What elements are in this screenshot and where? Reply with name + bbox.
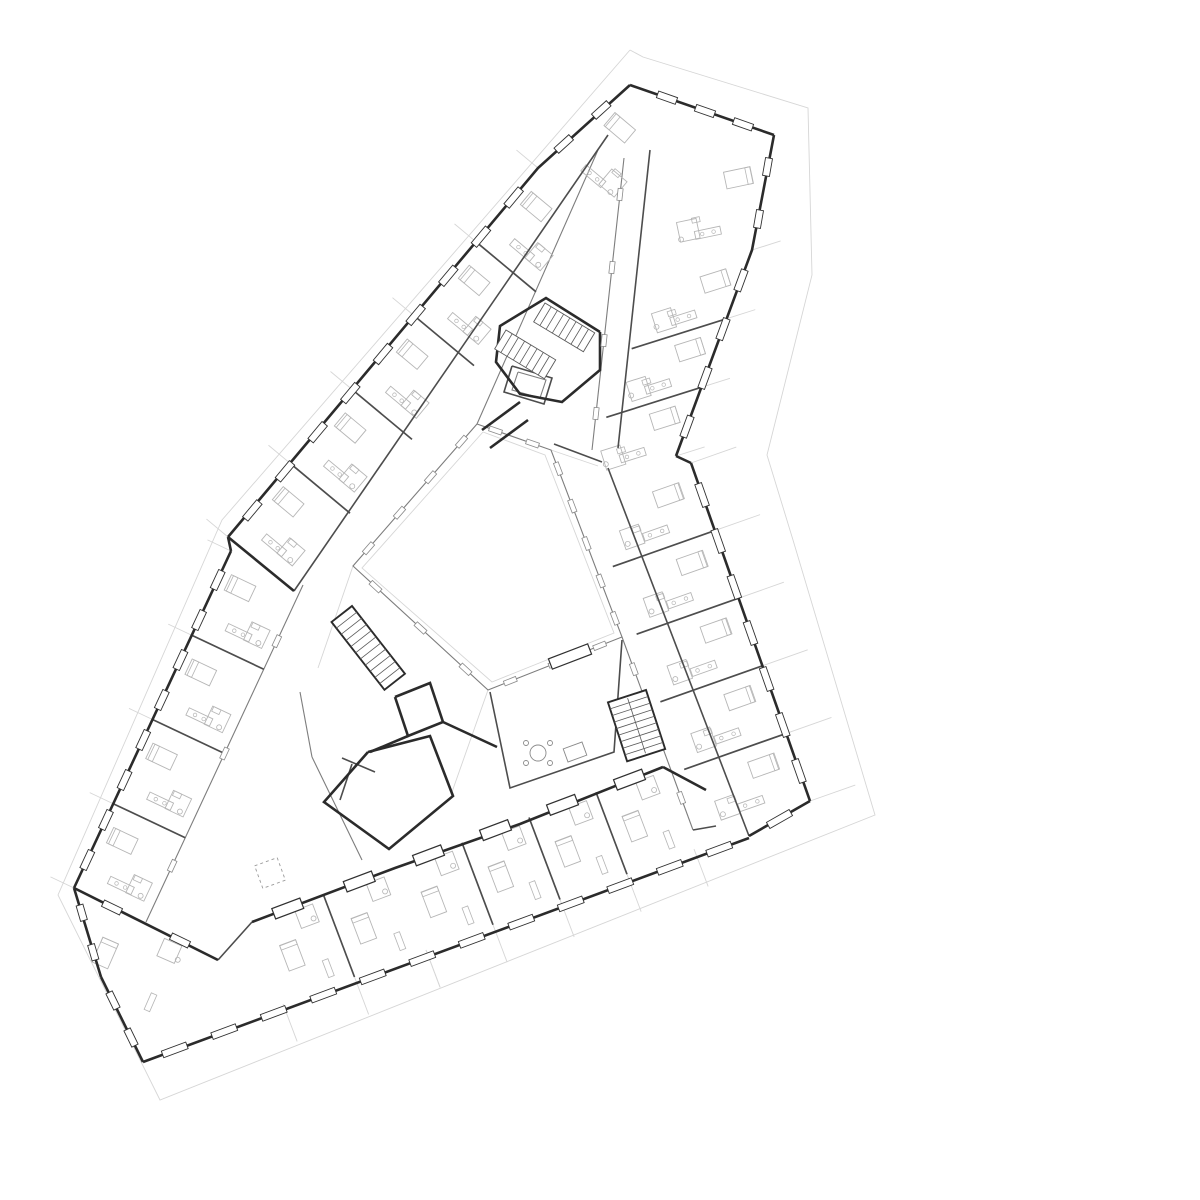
- wing-b-lower-units-ext: [715, 515, 760, 531]
- kitchen-counter: [666, 593, 693, 609]
- window: [373, 343, 392, 364]
- wc-fixture: [350, 484, 355, 489]
- desk: [462, 906, 474, 925]
- sawtooth-t1: [342, 758, 375, 772]
- window-tick: [369, 580, 382, 592]
- burner: [154, 797, 158, 801]
- entry-porch-a1: [482, 402, 520, 430]
- window: [680, 415, 694, 438]
- sink: [212, 707, 221, 715]
- sink: [691, 217, 700, 224]
- southwest-end-wall-a: [101, 977, 143, 1062]
- bed: [488, 861, 513, 892]
- bed-pillow: [226, 576, 238, 594]
- burner: [625, 455, 629, 459]
- wing-a-units-ext: [392, 298, 414, 316]
- burner: [648, 533, 652, 537]
- window: [99, 809, 114, 830]
- wc-fixture: [536, 262, 541, 267]
- wc-fixture: [383, 889, 388, 894]
- bathroom: [204, 706, 231, 733]
- window: [694, 104, 715, 117]
- bathroom: [165, 790, 192, 817]
- window: [76, 904, 87, 921]
- wing-b-upper-units-ext: [676, 447, 705, 456]
- large-window: [343, 871, 375, 892]
- wc-fixture: [518, 838, 523, 843]
- window-tick: [610, 611, 619, 625]
- window-tick: [582, 537, 591, 551]
- wc-fixture: [451, 863, 456, 868]
- burner: [672, 601, 676, 605]
- bed: [652, 483, 683, 508]
- large-window: [614, 769, 646, 790]
- burner: [660, 529, 664, 533]
- desk: [394, 932, 406, 951]
- burner: [595, 178, 599, 182]
- window: [275, 461, 294, 482]
- wc-fixture: [256, 641, 261, 646]
- window-tick: [677, 791, 686, 804]
- common-room-side-table: [563, 742, 587, 762]
- wc-fixture: [652, 788, 657, 793]
- entry-porch-a2: [490, 420, 528, 448]
- sawtooth-corridor-a: [312, 757, 362, 860]
- window: [695, 483, 710, 508]
- window: [776, 713, 791, 738]
- burner: [743, 804, 747, 808]
- burner: [684, 597, 688, 601]
- kitchen-counter: [186, 708, 213, 726]
- left-wing-units-ext: [90, 793, 114, 804]
- large-window: [413, 845, 445, 866]
- window: [554, 135, 574, 154]
- bed: [146, 743, 178, 770]
- window-tick: [596, 574, 605, 588]
- burner: [651, 386, 655, 390]
- bathroom: [126, 875, 153, 902]
- burner: [708, 664, 712, 668]
- stair-cores: [332, 303, 666, 761]
- window: [154, 689, 169, 710]
- wc-fixture: [288, 558, 293, 563]
- window-tick: [593, 641, 607, 650]
- window: [101, 900, 122, 915]
- window: [211, 1024, 238, 1040]
- window-tick: [568, 499, 577, 513]
- window: [763, 158, 773, 177]
- window-tick: [489, 426, 503, 435]
- wing-a-inner-wall: [294, 135, 608, 591]
- bottom-wing-units-east-partition: [462, 843, 493, 925]
- burner: [720, 736, 724, 740]
- floor-plan-drawing: [0, 0, 1200, 1200]
- bed-pillow: [488, 861, 506, 872]
- bed-pillow: [555, 836, 573, 847]
- courtyard-gallery-line: [362, 432, 614, 682]
- corridor-junction: [693, 826, 716, 830]
- desk: [322, 959, 334, 978]
- burner: [696, 669, 700, 673]
- burner: [400, 399, 404, 403]
- window: [711, 529, 726, 554]
- bed: [280, 940, 305, 971]
- kitchen-counter: [448, 312, 473, 335]
- desk: [596, 855, 608, 874]
- burner: [232, 629, 236, 633]
- bed-pillow: [274, 488, 289, 504]
- kitchen-counter: [262, 534, 287, 557]
- bed-pillow: [398, 341, 413, 357]
- bed-pillow: [670, 406, 680, 424]
- window: [792, 759, 807, 784]
- bed-pillow: [187, 660, 199, 678]
- bed-pillow: [108, 828, 120, 846]
- floor-plan-page: [0, 0, 1200, 1200]
- wc-fixture: [177, 809, 182, 814]
- wc-fixture: [649, 609, 654, 614]
- wing-b-lower-units-ext: [786, 717, 831, 733]
- burner: [338, 473, 342, 477]
- wing-b-corridor-west-facade: [592, 158, 624, 450]
- wc-fixture: [720, 812, 725, 817]
- window: [308, 422, 327, 443]
- bed-pillow: [460, 267, 475, 283]
- common-room-table: [530, 745, 546, 761]
- window: [754, 210, 764, 229]
- bed-pillow: [622, 810, 640, 821]
- large-window: [548, 644, 591, 669]
- bed-pillow: [336, 414, 351, 430]
- sink: [172, 791, 181, 799]
- left-wing-units-ext: [129, 708, 153, 719]
- bathroom: [277, 538, 305, 566]
- window-tick: [503, 676, 517, 685]
- wing-a-units-ext: [268, 445, 290, 463]
- bed: [351, 913, 376, 944]
- chair: [524, 741, 529, 746]
- wing-b-lower-units-ext: [762, 650, 807, 666]
- window: [359, 969, 386, 985]
- window: [508, 914, 535, 930]
- burner: [756, 800, 760, 804]
- burner: [193, 713, 197, 717]
- burner: [712, 230, 716, 234]
- window: [210, 569, 225, 590]
- bed: [700, 269, 731, 293]
- wc-fixture: [138, 893, 143, 898]
- window: [260, 1006, 287, 1022]
- window: [106, 991, 120, 1010]
- wc-fixture: [625, 541, 630, 546]
- window-tick: [455, 435, 467, 448]
- bathroom: [243, 622, 270, 649]
- sawtooth-corridor-b: [300, 692, 312, 757]
- site-marker: [255, 858, 286, 889]
- burner: [676, 318, 680, 322]
- sawtooth-kite: [324, 736, 453, 849]
- window: [117, 769, 132, 790]
- burner: [455, 319, 459, 323]
- sawtooth-square: [395, 683, 443, 736]
- burner: [123, 886, 127, 890]
- window-symbols: [76, 91, 806, 1058]
- wc-fixture: [697, 744, 702, 749]
- kitchen-counter: [225, 624, 252, 642]
- bed: [676, 551, 707, 576]
- window: [766, 810, 792, 829]
- bed: [622, 811, 647, 842]
- kitchen-counter: [510, 239, 535, 262]
- bed-pillow: [421, 886, 439, 897]
- window-tick: [424, 471, 436, 484]
- window: [607, 878, 634, 894]
- window: [243, 500, 262, 521]
- desk: [529, 881, 541, 900]
- burner: [517, 245, 521, 249]
- large-window: [547, 794, 579, 815]
- bed: [106, 827, 138, 854]
- window-tick: [617, 188, 623, 200]
- kitchen-counter: [107, 876, 134, 894]
- bed-pillow: [522, 193, 537, 209]
- bottom-junction-wall: [663, 767, 706, 790]
- bed-pillow: [148, 744, 160, 762]
- window: [727, 575, 742, 600]
- burner: [732, 732, 736, 736]
- window-tick: [593, 407, 599, 419]
- wing-b-lower-units-ext: [739, 582, 784, 598]
- partition-jog: [218, 922, 252, 960]
- burner: [700, 232, 704, 236]
- window: [439, 265, 458, 286]
- burner: [269, 540, 273, 544]
- bed: [224, 575, 256, 602]
- window: [557, 896, 584, 912]
- bed: [723, 167, 753, 189]
- wing-b-upper-units-ext: [727, 310, 756, 319]
- west-facade-lower: [74, 551, 231, 888]
- window-tick: [220, 747, 230, 760]
- bed: [555, 836, 580, 867]
- sink: [133, 875, 142, 883]
- large-window: [480, 820, 512, 841]
- window-tick: [609, 261, 615, 273]
- bed: [748, 753, 779, 778]
- wing-b-upper-units-ext: [752, 241, 781, 250]
- large-window: [272, 898, 304, 919]
- bed: [649, 406, 680, 430]
- window-tick: [526, 439, 540, 448]
- bottom-wing-units-east-partition: [596, 792, 627, 874]
- window-tick: [601, 334, 607, 346]
- bed: [421, 886, 446, 917]
- wing-b-lower-units-ext: [810, 785, 855, 801]
- window: [732, 118, 753, 131]
- window: [656, 860, 683, 876]
- window-tick: [553, 462, 562, 476]
- wc-fixture: [217, 725, 222, 730]
- burner: [241, 633, 245, 637]
- stair-core-3: [608, 690, 665, 761]
- wc-fixture: [311, 916, 316, 921]
- burner: [662, 383, 666, 387]
- bed-pillow: [101, 937, 119, 948]
- burner: [202, 717, 206, 721]
- sink: [251, 622, 260, 630]
- burner: [393, 393, 397, 397]
- burner: [115, 882, 119, 886]
- furniture-symbols: [92, 113, 780, 1012]
- kitchen-counter: [324, 460, 349, 483]
- window: [310, 987, 337, 1003]
- window: [706, 841, 733, 857]
- burner: [687, 314, 691, 318]
- window: [192, 609, 207, 630]
- sawtooth-link: [443, 722, 497, 747]
- bed: [675, 337, 706, 361]
- window-tick: [393, 506, 405, 519]
- kitchen-counter: [386, 386, 411, 409]
- window: [743, 621, 758, 646]
- window: [591, 101, 611, 120]
- stair-core-2-outline: [332, 606, 405, 690]
- window: [173, 649, 188, 670]
- stair-core-2: [332, 606, 405, 690]
- wc-fixture: [585, 813, 590, 818]
- window: [458, 933, 485, 949]
- desk: [144, 993, 157, 1012]
- southwest-end-wall-b: [74, 888, 101, 977]
- kitchen-counter: [642, 525, 669, 541]
- window-tick: [459, 663, 472, 675]
- window-tick: [629, 663, 638, 676]
- burner: [637, 452, 641, 456]
- east-facade-upper: [676, 135, 774, 456]
- window: [759, 667, 774, 692]
- window: [169, 933, 190, 948]
- exterior-walls: [74, 85, 810, 1062]
- chair: [548, 761, 553, 766]
- bottom-wing-units-east-partition: [529, 818, 560, 900]
- wc-fixture: [474, 336, 479, 341]
- bathroom: [525, 243, 553, 271]
- elbow-jog: [676, 456, 691, 463]
- bed-pillow: [721, 269, 731, 287]
- kitchen-counter: [714, 728, 741, 744]
- bed-pillow: [696, 337, 706, 355]
- burner: [462, 325, 466, 329]
- window-tick: [362, 542, 374, 555]
- bottom-wing-units-west-partition: [324, 895, 355, 977]
- window: [124, 1028, 138, 1047]
- burner: [276, 546, 280, 550]
- window-tick: [272, 635, 282, 648]
- kitchen-counter: [690, 660, 717, 676]
- window: [734, 269, 748, 292]
- bed: [724, 686, 755, 711]
- chair: [548, 741, 553, 746]
- wing-a-units-ext: [206, 519, 228, 537]
- bed-pillow: [351, 912, 369, 923]
- window: [136, 729, 151, 750]
- window: [161, 1042, 188, 1058]
- chair: [524, 761, 529, 766]
- window-tick: [167, 859, 177, 872]
- wing-a-corridor-facade: [477, 150, 598, 424]
- annotations: [255, 741, 587, 889]
- bed: [185, 659, 217, 686]
- burner: [163, 801, 167, 805]
- bed: [700, 618, 731, 643]
- window: [656, 91, 677, 104]
- kitchen-counter: [147, 792, 174, 810]
- burner: [331, 467, 335, 471]
- wc-fixture: [679, 237, 684, 242]
- bed-pillow: [745, 167, 753, 185]
- window: [698, 366, 712, 389]
- kitchen-counter: [738, 795, 765, 811]
- bed-pillow: [280, 939, 298, 950]
- left-wing-units-ext: [168, 624, 192, 635]
- wc-fixture: [673, 677, 678, 682]
- bathroom: [339, 464, 367, 492]
- desk: [663, 830, 675, 849]
- bottom-wing-north-facade: [252, 767, 663, 922]
- window: [80, 849, 95, 870]
